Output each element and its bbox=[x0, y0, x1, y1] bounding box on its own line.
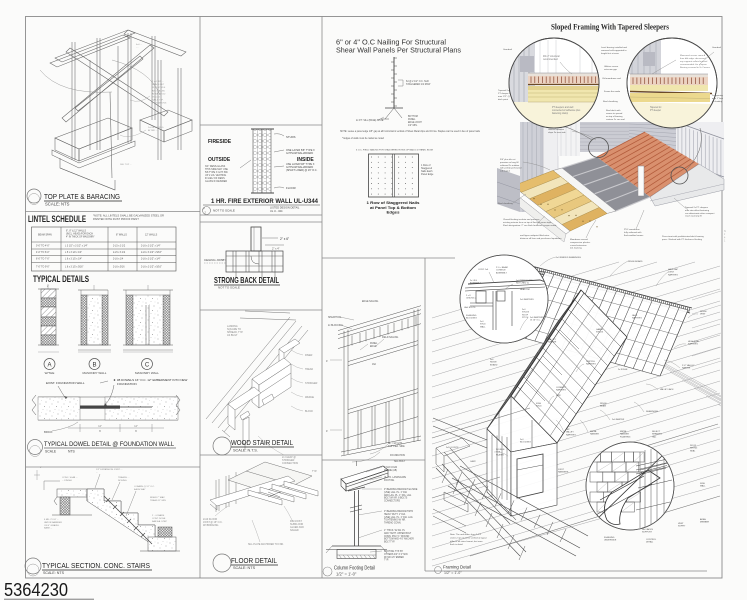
svg-text:METAL: METAL bbox=[620, 430, 628, 433]
svg-text:FLASHING: FLASHING bbox=[604, 536, 615, 539]
svg-text:AT MID ...: AT MID ... bbox=[148, 129, 158, 132]
svg-text:1/2" = 1'-0": 1/2" = 1'-0" bbox=[444, 571, 462, 575]
svg-text:seams to spread: seams to spread bbox=[606, 112, 623, 115]
svg-text:can deteriorate when compact: can deteriorate when compact bbox=[685, 212, 715, 215]
svg-text:NOT TO SCALE: NOT TO SCALE bbox=[213, 209, 235, 213]
svg-text:reach warranty B: reach warranty B bbox=[685, 215, 702, 218]
svg-text:4'-0" TO 6'-0": 4'-0" TO 6'-0" bbox=[36, 252, 50, 254]
svg-text:EACH WAY: EACH WAY bbox=[134, 488, 146, 491]
svg-text:fully softened with: fully softened with bbox=[624, 231, 642, 234]
svg-text:W/ NR 4-5" EMBED: W/ NR 4-5" EMBED bbox=[384, 557, 404, 559]
svg-text:fastening clamp: fastening clamp bbox=[552, 112, 569, 115]
svg-text:A: A bbox=[47, 363, 51, 369]
svg-text:RAFTERS: RAFTERS bbox=[586, 363, 596, 366]
svg-text:MASONRY WALL: MASONRY WALL bbox=[135, 371, 159, 375]
svg-text:L 5 x 3 1/2 x 1/4": L 5 x 3 1/2 x 1/4" bbox=[65, 252, 82, 254]
svg-text:compressive plastics: compressive plastics bbox=[570, 241, 591, 244]
svg-text:TYPICAL SECTION. CONC. STAIRS: TYPICAL SECTION. CONC. STAIRS bbox=[42, 561, 150, 570]
svg-text:2-L6 x 5/16: 2-L6 x 5/16 bbox=[113, 267, 125, 269]
svg-text:differ to all stairs format; l: differ to all stairs format; last rows bbox=[450, 540, 483, 543]
svg-text:SCALE: NTS: SCALE: NTS bbox=[233, 566, 256, 570]
svg-text:KING: KING bbox=[536, 403, 541, 405]
svg-text:AREA: AREA bbox=[700, 518, 706, 521]
svg-text:INTO STUDS: INTO STUDS bbox=[152, 87, 166, 89]
svg-text:2x1 backing: 2x1 backing bbox=[570, 248, 582, 250]
svg-text:SUPPORT: SUPPORT bbox=[642, 532, 653, 534]
svg-text:UL. TD. LANDSCAPE: UL. TD. LANDSCAPE bbox=[384, 476, 406, 479]
svg-text:RAFTER: RAFTER bbox=[548, 341, 557, 344]
svg-text:W/ BRIDGING: W/ BRIDGING bbox=[203, 524, 219, 527]
svg-text:distance off liner and purchas: distance off liner and purchases liquida… bbox=[520, 237, 562, 240]
svg-text:Tapered 2x: Tapered 2x bbox=[498, 89, 510, 92]
svg-text:4x4 ...: 4x4 ... bbox=[136, 44, 142, 46]
svg-text:TIGHTENING W/ NR.: TIGHTENING W/ NR. bbox=[384, 520, 406, 522]
svg-text:JACK: JACK bbox=[632, 314, 638, 317]
svg-text:2x6 RAFTER: 2x6 RAFTER bbox=[612, 418, 625, 421]
svg-text:TYP.: TYP. bbox=[384, 560, 389, 562]
svg-text:THREAD CONN.: THREAD CONN. bbox=[384, 522, 402, 525]
svg-text:1 HR. FIRE EXTERIOR WALL UL-U3: 1 HR. FIRE EXTERIOR WALL UL-U344 bbox=[211, 198, 318, 205]
svg-text:#4 BARS @ 12" O.C.: #4 BARS @ 12" O.C. bbox=[134, 485, 155, 488]
svg-text:SHEATHG: SHEATHG bbox=[652, 433, 662, 436]
svg-text:4" IN THICK OF MASONRY: 4" IN THICK OF MASONRY bbox=[66, 236, 95, 239]
svg-text:LISTED DESIGN DETAIL: LISTED DESIGN DETAIL bbox=[270, 206, 300, 210]
svg-text:2x6 RAFTERS: 2x6 RAFTERS bbox=[520, 298, 534, 301]
svg-text:contour 2x can roof: contour 2x can roof bbox=[606, 118, 625, 121]
svg-text:2" x 6": 2" x 6" bbox=[280, 237, 289, 241]
svg-text:2x6 RAFTERS: 2x6 RAFTERS bbox=[530, 316, 544, 319]
svg-text:FOOTING: FOOTING bbox=[384, 480, 394, 482]
svg-text:1/2" = 1'-0": 1/2" = 1'-0" bbox=[336, 572, 357, 577]
svg-text:2-L6 x 3 1/2" x 1/4": 2-L6 x 3 1/2" x 1/4" bbox=[141, 246, 161, 248]
svg-text:TYPICAL DETAILS: TYPICAL DETAILS bbox=[33, 274, 89, 284]
svg-text:TREAD 11" MIN: TREAD 11" MIN bbox=[150, 499, 166, 502]
svg-text:GLASS IF DESIRED: GLASS IF DESIRED bbox=[205, 180, 227, 183]
svg-text:SILL PLATE ANCHORED TO FND.: SILL PLATE ANCHORED TO FND. bbox=[248, 543, 284, 546]
svg-text:JOINT: JOINT bbox=[668, 272, 675, 274]
svg-text:RAFTERS: RAFTERS bbox=[566, 433, 576, 436]
svg-text:@ 16" O.C.: @ 16" O.C. bbox=[530, 320, 541, 322]
svg-text:than bldr edge: decreased: than bldr edge: decreased bbox=[680, 57, 706, 60]
svg-text:VENT: VENT bbox=[700, 314, 706, 316]
svg-text:12": 12" bbox=[98, 425, 102, 428]
svg-text:STUDS: STUDS bbox=[286, 135, 296, 139]
svg-text:2x BLOCKING: 2x BLOCKING bbox=[328, 325, 343, 327]
svg-text:2-L6 x 3 1/2" x 1/4": 2-L6 x 3 1/2" x 1/4" bbox=[141, 259, 161, 261]
svg-text:and figure midpoint filled ext: and figure midpoint filled extra bbox=[520, 234, 550, 237]
svg-text:SHTNG: SHTNG bbox=[690, 448, 698, 450]
svg-text:slope 2x max side: slope 2x max side bbox=[548, 132, 566, 134]
svg-text:Frame the made: Frame the made bbox=[604, 90, 621, 93]
svg-text:TYP 4 EA. SIDE: TYP 4 EA. SIDE bbox=[388, 445, 405, 448]
svg-text:Flash designation: 2" can flas: Flash designation: 2" can flash for dist… bbox=[503, 224, 557, 227]
svg-text:STUD: STUD bbox=[536, 406, 542, 408]
svg-text:TYP.: TYP. bbox=[312, 470, 317, 473]
svg-text:Guardrail: Guardrail bbox=[712, 46, 722, 49]
svg-text:2x tapering: 2x tapering bbox=[712, 94, 724, 97]
svg-text:3' 6x6 COLM: 3' 6x6 COLM bbox=[384, 467, 397, 469]
svg-text:Utilities between: Utilities between bbox=[548, 128, 565, 131]
svg-text:HANGER: HANGER bbox=[590, 433, 599, 436]
svg-text:Guardrail: Guardrail bbox=[503, 48, 513, 51]
svg-text:1/2" EXPANSION JOINT ...: 1/2" EXPANSION JOINT ... bbox=[96, 468, 123, 471]
svg-text:CEILING J.: CEILING J. bbox=[466, 298, 477, 300]
svg-text:CORNICE: CORNICE bbox=[496, 270, 506, 272]
svg-text:connected w/ adhesive plus: connected w/ adhesive plus bbox=[552, 109, 581, 112]
svg-text:W/ 2-8d: W/ 2-8d bbox=[152, 97, 160, 99]
svg-text:EXIST. FOUNDATION WALL: EXIST. FOUNDATION WALL bbox=[46, 381, 85, 385]
svg-text:SELECT: SELECT bbox=[652, 431, 661, 433]
svg-text:BRICK: BRICK bbox=[44, 430, 53, 434]
svg-text:TYPICAL DOWEL DETAIL @ FOUNDAT: TYPICAL DOWEL DETAIL @ FOUNDATION WALL bbox=[44, 441, 174, 448]
svg-text:deck point: deck point bbox=[498, 98, 508, 101]
svg-text:UL U - 344: UL U - 344 bbox=[270, 209, 283, 213]
svg-text:2 - #4 BARS: 2 - #4 BARS bbox=[152, 514, 165, 517]
svg-text:12" WALLS: 12" WALLS bbox=[145, 234, 158, 237]
svg-text:NOTE: Leave a panel edge 1/8": NOTE: Leave a panel edge 1/8" gap at all… bbox=[340, 130, 481, 133]
svg-text:8" WALLS: 8" WALLS bbox=[116, 234, 127, 237]
svg-text:PAINTED WITH RUST PROOF PAINT: PAINTED WITH RUST PROOF PAINT bbox=[93, 217, 139, 221]
svg-text:recommended: recommended bbox=[543, 58, 558, 61]
svg-text:SCALE: SCALE bbox=[45, 450, 57, 454]
svg-text:Note: The roof differs from 1-: Note: The roof differs from 1-1/2 bbox=[450, 533, 482, 536]
svg-text:TOP PLATE & BARACING: TOP PLATE & BARACING bbox=[44, 192, 120, 201]
svg-text:STRONG BACK DETAIL: STRONG BACK DETAIL bbox=[214, 276, 279, 285]
svg-text:2x RIDGE: 2x RIDGE bbox=[618, 369, 628, 371]
svg-text:SHEATHING: SHEATHING bbox=[646, 410, 658, 413]
svg-text:OTHERS 3/4" X 3" MIN: OTHERS 3/4" X 3" MIN bbox=[384, 554, 408, 556]
svg-text:SOFFIT: SOFFIT bbox=[678, 526, 686, 528]
svg-text:CONNECT: CONNECT bbox=[556, 387, 567, 389]
svg-text:3/4" plus tile cut: 3/4" plus tile cut bbox=[500, 158, 516, 161]
svg-text:STUDS: STUDS bbox=[522, 312, 530, 314]
svg-text:CRIPPLE: CRIPPLE bbox=[586, 361, 596, 363]
svg-text:Bearing screwed to 2x Corners: Bearing screwed to 2x Corners bbox=[680, 66, 711, 69]
svg-text:2'-0 + BEAM: 2'-0 + BEAM bbox=[496, 266, 508, 269]
svg-text:Tapered 2x PT sleepers: Tapered 2x PT sleepers bbox=[685, 206, 709, 209]
svg-text:SCALE: N.T.S.: SCALE: N.T.S. bbox=[233, 449, 258, 453]
svg-text:4": 4" bbox=[40, 467, 42, 469]
svg-text:VAPOR BARRIER: VAPOR BARRIER bbox=[44, 521, 62, 524]
svg-text:Roof sheathing: Roof sheathing bbox=[498, 202, 513, 205]
svg-text:PA / JACKS: PA / JACKS bbox=[642, 528, 654, 531]
svg-text:PANEL: PANEL bbox=[408, 118, 416, 121]
svg-text:2-L6 x 3 1/2" x 5/16": 2-L6 x 3 1/2" x 5/16" bbox=[141, 252, 162, 254]
svg-text:3" BEARING BRACKET EA SIDE: 3" BEARING BRACKET EA SIDE bbox=[384, 488, 418, 491]
svg-text:CONTROL: CONTROL bbox=[646, 539, 657, 541]
svg-text:BOARD: BOARD bbox=[490, 363, 498, 366]
svg-text:FRAME (AB): FRAME (AB) bbox=[384, 469, 397, 472]
svg-text:CONNECTION: CONNECTION bbox=[282, 462, 298, 465]
svg-text:flash-welded seams: flash-welded seams bbox=[624, 235, 644, 237]
svg-text:RAFTERS: RAFTERS bbox=[688, 343, 698, 346]
svg-text:RAFTERS: RAFTERS bbox=[668, 273, 678, 276]
svg-text:ASSEMBLY: ASSEMBLY bbox=[470, 282, 482, 285]
svg-text:JOIST: JOIST bbox=[558, 469, 565, 471]
svg-text:on top of framing: on top of framing bbox=[606, 115, 623, 118]
svg-text:W/THE: W/THE bbox=[45, 371, 55, 375]
svg-text:6d @ 2 1/2" O.C. NLR: 6d @ 2 1/2" O.C. NLR bbox=[406, 81, 429, 83]
svg-text:HEAVY DUTY 1" DIA.: HEAVY DUTY 1" DIA. bbox=[384, 513, 406, 516]
svg-text:8": 8" bbox=[47, 286, 49, 288]
svg-text:DOUBLE: DOUBLE bbox=[496, 449, 505, 451]
svg-text:TREAD: TREAD bbox=[305, 368, 313, 371]
svg-text:FLOOR: FLOOR bbox=[286, 186, 296, 190]
svg-text:2-L6 x 3 1/2" x 5/16": 2-L6 x 3 1/2" x 5/16" bbox=[141, 267, 162, 269]
svg-text:1x3 SPACED SHEATHING: 1x3 SPACED SHEATHING bbox=[556, 256, 581, 259]
svg-text:AND NAILED: AND NAILED bbox=[152, 89, 166, 92]
svg-text:BLOCKING: BLOCKING bbox=[466, 318, 477, 320]
svg-text:MASONRY WALL: MASONRY WALL bbox=[83, 371, 107, 375]
svg-text:BASE ...: BASE ... bbox=[44, 527, 53, 530]
svg-text:stories; hips must be verified: stories; hips must be verified at layout bbox=[450, 536, 487, 539]
svg-text:flash in detail: flash in detail bbox=[450, 543, 463, 546]
svg-text:BAR EA. STEP: BAR EA. STEP bbox=[152, 520, 167, 523]
svg-text:premium or long fill: premium or long fill bbox=[500, 161, 519, 164]
svg-text:BL. / 1/2 GYP.: BL. / 1/2 GYP. bbox=[388, 443, 403, 445]
svg-text:ON 4" GRAVEL: ON 4" GRAVEL bbox=[44, 524, 60, 527]
svg-text:Tapered 2x: Tapered 2x bbox=[650, 106, 662, 109]
svg-text:FLASHING: FLASHING bbox=[466, 314, 477, 317]
svg-text:SIDE: SIDE bbox=[700, 483, 705, 485]
svg-text:DETAIL: DETAIL bbox=[646, 541, 654, 544]
svg-text:Membrane reused: Membrane reused bbox=[570, 238, 589, 241]
svg-text:2 x 4 MIN ...: 2 x 4 MIN ... bbox=[152, 81, 164, 83]
svg-text:* Edges of walls must be naile: * Edges of walls must be nailed as noted bbox=[342, 137, 385, 140]
svg-text:2-L5 x 3 1/2: 2-L5 x 3 1/2 bbox=[113, 246, 126, 248]
svg-text:Utilities secure: Utilities secure bbox=[604, 65, 619, 68]
svg-text:SHEATHING: SHEATHING bbox=[328, 316, 341, 319]
svg-text:NTS: NTS bbox=[68, 450, 76, 454]
svg-text:AND TIGHT. UPPER BOLT: AND TIGHT. UPPER BOLT bbox=[384, 532, 412, 535]
svg-text:6'-0" TO 7'-0": 6'-0" TO 7'-0" bbox=[36, 259, 50, 261]
svg-text:Sloped Framing With Tapered Sl: Sloped Framing With Tapered Sleepers bbox=[551, 23, 669, 32]
svg-text:NOTCHED 2x: NOTCHED 2x bbox=[516, 283, 530, 285]
svg-text:FLASHING: FLASHING bbox=[620, 435, 631, 438]
svg-text:WOOD STAIR DETAIL: WOOD STAIR DETAIL bbox=[231, 440, 293, 447]
svg-text:STAGGERED 1/2 ROW: STAGGERED 1/2 ROW bbox=[406, 83, 431, 86]
svg-text:STUDS: STUDS bbox=[596, 332, 604, 334]
svg-text:2x4 BLOCKING: 2x4 BLOCKING bbox=[148, 127, 164, 129]
svg-text:sub layout: sub layout bbox=[500, 170, 510, 173]
svg-text:L 6 x 3 1/2 x 5/16": L 6 x 3 1/2 x 5/16" bbox=[65, 267, 84, 269]
svg-text:ROOF: ROOF bbox=[690, 445, 697, 447]
svg-text:BOTTOM AND 4-5" ANCHOR: BOTTOM AND 4-5" ANCHOR bbox=[384, 538, 414, 541]
svg-text:HDR: HDR bbox=[556, 395, 561, 397]
svg-text:setscrew gap: setscrew gap bbox=[604, 68, 618, 71]
svg-text:PT sleepers and well: PT sleepers and well bbox=[552, 106, 574, 109]
svg-text:PLATES: PLATES bbox=[496, 453, 504, 456]
svg-text:CONT. NOSE: CONT. NOSE bbox=[152, 518, 166, 520]
svg-text:FLOOR DETAIL: FLOOR DETAIL bbox=[231, 556, 277, 565]
svg-text:48x 2" structural: 48x 2" structural bbox=[543, 55, 560, 58]
svg-text:HALF-LAP: HALF-LAP bbox=[668, 268, 679, 271]
svg-text:Measured screws same A: Measured screws same A bbox=[680, 54, 706, 57]
svg-text:NOSING: NOSING bbox=[118, 480, 127, 482]
svg-text:curved extension: curved extension bbox=[570, 244, 587, 247]
svg-text:WALL: WALL bbox=[700, 485, 706, 488]
svg-text:CONN. POLY 1" ROUND: CONN. POLY 1" ROUND bbox=[384, 536, 410, 538]
svg-text:max 1'/2" @: max 1'/2" @ bbox=[498, 96, 511, 98]
svg-text:MEMBER: MEMBER bbox=[700, 522, 710, 524]
svg-text:DBL TOP ...: DBL TOP ... bbox=[120, 164, 132, 166]
svg-text:1x4 TRIM BOARD: 1x4 TRIM BOARD bbox=[516, 279, 533, 282]
svg-text:GYPSUM WALLBOARD: GYPSUM WALLBOARD bbox=[286, 152, 313, 155]
svg-text:PANEL: PANEL bbox=[370, 342, 378, 345]
svg-text:HANGER: HANGER bbox=[620, 433, 629, 436]
svg-text:5364230: 5364230 bbox=[4, 579, 68, 600]
svg-text:SCALE: NTS: SCALE: NTS bbox=[43, 571, 65, 575]
svg-text:HANGERS: HANGERS bbox=[558, 471, 569, 474]
svg-text:FOUNDATION: FOUNDATION bbox=[117, 382, 137, 386]
svg-text:... FINISH: ... FINISH bbox=[62, 480, 72, 482]
svg-text:of shading: of shading bbox=[712, 101, 723, 103]
svg-text:BLOCKING: BLOCKING bbox=[520, 442, 531, 444]
svg-text:CANT.: CANT. bbox=[470, 460, 476, 463]
svg-text:RIDGE BOARD: RIDGE BOARD bbox=[628, 260, 643, 263]
svg-text:BOLT TYP.: BOLT TYP. bbox=[384, 542, 395, 544]
svg-text:BEAM: BEAM bbox=[600, 405, 606, 408]
svg-text:SILL BOLT: SILL BOLT bbox=[394, 461, 406, 463]
svg-text:Closed flashing insulate and p: Closed flashing insulate and preserve bbox=[503, 218, 540, 221]
svg-text:2x P.T. SILL (BASE) SHOE: 2x P.T. SILL (BASE) SHOE bbox=[356, 119, 384, 122]
svg-text:4 LOCATIONS: 4 LOCATIONS bbox=[152, 102, 167, 105]
svg-text:B: B bbox=[92, 363, 96, 369]
svg-text:2x LKG: 2x LKG bbox=[470, 280, 477, 282]
svg-text:(USE) LAG. PL. 1" DIA. LAG: (USE) LAG. PL. 1" DIA. LAG bbox=[384, 516, 413, 519]
svg-text:Roof deck with: Roof deck with bbox=[606, 109, 621, 112]
svg-text:RISER 7" MAX: RISER 7" MAX bbox=[150, 496, 165, 499]
svg-text:ASSEMBLY: ASSEMBLY bbox=[496, 271, 508, 274]
svg-text:Level bracing installed and: Level bracing installed and bbox=[601, 46, 628, 49]
svg-text:BOTTOM: BOTTOM bbox=[408, 116, 418, 118]
svg-text:GABLE: GABLE bbox=[596, 328, 604, 331]
svg-text:L 6 x 3 1/2 x 1/4": L 6 x 3 1/2 x 1/4" bbox=[65, 259, 82, 261]
svg-text:AT EA. STUD: AT EA. STUD bbox=[152, 92, 166, 95]
svg-text:PVC membrane: PVC membrane bbox=[624, 228, 640, 231]
svg-text:BOLT W/ NR. 8 BOLTS: BOLT W/ NR. 8 BOLTS bbox=[384, 498, 408, 500]
svg-text:CONT. 2x6: CONT. 2x6 bbox=[478, 269, 489, 271]
svg-text:Framing Detail: Framing Detail bbox=[443, 565, 471, 571]
svg-text:BRACE LET: BRACE LET bbox=[152, 83, 165, 86]
svg-text:Press-treat with prefabricated: Press-treat with prefabricated deck fram… bbox=[662, 235, 704, 238]
svg-text:WEDGE: WEDGE bbox=[305, 396, 314, 399]
svg-text:1" THICK. W/ AN. PL: 1" THICK. W/ AN. PL bbox=[384, 529, 406, 532]
svg-text:CONNECTORS: CONNECTORS bbox=[384, 501, 400, 503]
svg-text:WALL: WALL bbox=[480, 325, 486, 328]
svg-text:Edges: Edges bbox=[387, 210, 401, 215]
svg-text:length first at ease: length first at ease bbox=[601, 52, 620, 55]
svg-text:METAL: METAL bbox=[590, 430, 598, 433]
svg-text:BEAM SPAN: BEAM SPAN bbox=[38, 234, 52, 237]
svg-text:UNDERSIDE: UNDERSIDE bbox=[604, 540, 617, 542]
svg-text:2" x 4": 2" x 4" bbox=[272, 247, 280, 251]
svg-text:2-L6 x 1/4: 2-L6 x 1/4 bbox=[113, 259, 124, 261]
svg-text:RIDGE: RIDGE bbox=[490, 362, 497, 364]
svg-text:VALLEY: VALLEY bbox=[548, 338, 556, 341]
svg-text:6 MIL. POLY ...: 6 MIL. POLY ... bbox=[44, 519, 59, 521]
svg-text:RAFTER: RAFTER bbox=[682, 367, 691, 370]
svg-text:ROOF: ROOF bbox=[522, 314, 529, 316]
svg-text:max rate-offset fastening: max rate-offset fastening bbox=[685, 209, 710, 212]
svg-text:TREADS ...: TREADS ... bbox=[118, 476, 130, 479]
svg-text:softened 2x outdoor: softened 2x outdoor bbox=[500, 164, 520, 167]
svg-text:12": 12" bbox=[134, 425, 138, 428]
svg-text:(INCL. HEAD) FOR EACH: (INCL. HEAD) FOR EACH bbox=[66, 233, 93, 236]
svg-text:2x10 JOISTS: 2x10 JOISTS bbox=[446, 447, 459, 449]
svg-text:VENT: VENT bbox=[678, 523, 684, 525]
svg-text:CEILING JOIST: CEILING JOIST bbox=[204, 258, 225, 262]
svg-text:NOT TO SCALE: NOT TO SCALE bbox=[218, 286, 240, 290]
svg-text:*NOTE: ALL LINTELS SHALL BE GA: *NOTE: ALL LINTELS SHALL BE GALVANIZED S… bbox=[93, 214, 164, 218]
svg-text:max 1" butt: max 1" butt bbox=[712, 97, 723, 100]
svg-text:HEAD RM: HEAD RM bbox=[520, 288, 530, 291]
svg-text:7'-0" TO 9'-0": 7'-0" TO 9'-0" bbox=[36, 267, 50, 269]
svg-text:press / flashed with PT thickn: press / flashed with PT thickness flashi… bbox=[662, 238, 703, 241]
svg-text:(USE) LAG. PL. 1" DIA: (USE) LAG. PL. 1" DIA bbox=[384, 491, 407, 494]
svg-text:NAILED: NAILED bbox=[290, 529, 299, 532]
svg-text:RIDGE: RIDGE bbox=[700, 311, 707, 313]
svg-text:C: C bbox=[145, 363, 150, 369]
svg-text:(SHAFT LINER) @ 16" O.C.: (SHAFT LINER) @ 16" O.C. bbox=[286, 169, 318, 172]
svg-text:1/2" MIN.: 1/2" MIN. bbox=[408, 125, 418, 127]
svg-text:LINTEL SCHEDULE: LINTEL SCHEDULE bbox=[28, 214, 86, 224]
svg-text:AS BUILT: AS BUILT bbox=[227, 334, 238, 337]
svg-text:FOUNDATION: FOUNDATION bbox=[390, 454, 405, 457]
svg-text:EDGE: EDGE bbox=[370, 346, 377, 348]
svg-text:removed self-supported to: removed self-supported to bbox=[601, 49, 627, 52]
svg-text:6", 8" & 12" WALLS: 6", 8" & 12" WALLS bbox=[66, 230, 86, 233]
svg-text:Roof sheathing: Roof sheathing bbox=[603, 100, 618, 103]
svg-text:HIGH-SIDE: HIGH-SIDE bbox=[688, 341, 699, 343]
svg-text:2'-6" VALLEY: 2'-6" VALLEY bbox=[682, 364, 695, 367]
svg-text:L 3 1/2" x 3 1/2" x 1/4": L 3 1/2" x 3 1/2" x 1/4" bbox=[65, 246, 88, 248]
svg-text:STRINGER: STRINGER bbox=[305, 382, 318, 385]
svg-text:recommended: the purpose: recommended: the purpose bbox=[680, 63, 708, 66]
svg-text:FOOTING TYP. BY: FOOTING TYP. BY bbox=[384, 551, 404, 553]
svg-text:RIDGE: RIDGE bbox=[600, 403, 607, 405]
svg-text:with prefab perforated: with prefab perforated bbox=[500, 167, 522, 170]
svg-text:PT sleeper: PT sleeper bbox=[650, 109, 661, 112]
svg-text:EDGE NAILING: EDGE NAILING bbox=[362, 300, 379, 303]
svg-text:existing exterior face on top: existing exterior face on top of flashin… bbox=[503, 221, 552, 224]
svg-text:0'-0" TO 4'-0": 0'-0" TO 4'-0" bbox=[36, 246, 50, 248]
svg-text:RAFTERS: RAFTERS bbox=[556, 389, 566, 392]
svg-text:RAFTERS: RAFTERS bbox=[632, 317, 642, 320]
svg-text:Old membrane roof: Old membrane roof bbox=[602, 77, 621, 80]
svg-text:BLOCK: BLOCK bbox=[305, 410, 314, 413]
svg-text:NAILS TYP.: NAILS TYP. bbox=[152, 99, 164, 102]
svg-text:VALLEY: VALLEY bbox=[566, 431, 574, 434]
svg-text:EDGE JOINT: EDGE JOINT bbox=[408, 122, 422, 124]
svg-text:Shear Wall Panels Per Structur: Shear Wall Panels Per Structural Plans bbox=[336, 46, 461, 55]
svg-text:SCALE: NTS: SCALE: NTS bbox=[45, 202, 70, 207]
svg-text:RISER: RISER bbox=[305, 354, 313, 357]
svg-text:2-L5 x 3 1/2: 2-L5 x 3 1/2 bbox=[113, 252, 126, 254]
svg-text:OUTSIDE: OUTSIDE bbox=[208, 157, 231, 163]
svg-text:6 O.C. FIELD NAILING FOR STAGG: 6 O.C. FIELD NAILING FOR STAGGERED ROWS … bbox=[356, 149, 434, 152]
svg-text:Panel Edge: Panel Edge bbox=[421, 173, 434, 176]
svg-text:FIELD NAILING: FIELD NAILING bbox=[382, 336, 399, 339]
svg-text:SEAL: SEAL bbox=[690, 449, 696, 452]
svg-text:....: .... bbox=[136, 47, 139, 49]
svg-text:LAG BOLTS: LAG BOLTS bbox=[464, 306, 476, 309]
svg-text:VALLEY JACK: VALLEY JACK bbox=[660, 388, 674, 391]
svg-text:STUD: STUD bbox=[480, 324, 486, 326]
svg-text:PT sleeper 2: PT sleeper 2 bbox=[498, 92, 511, 95]
svg-text:FIRESIDE: FIRESIDE bbox=[208, 139, 232, 145]
svg-text:AND LAG. PL. 1" DIA. LAG: AND LAG. PL. 1" DIA. LAG bbox=[384, 494, 412, 497]
